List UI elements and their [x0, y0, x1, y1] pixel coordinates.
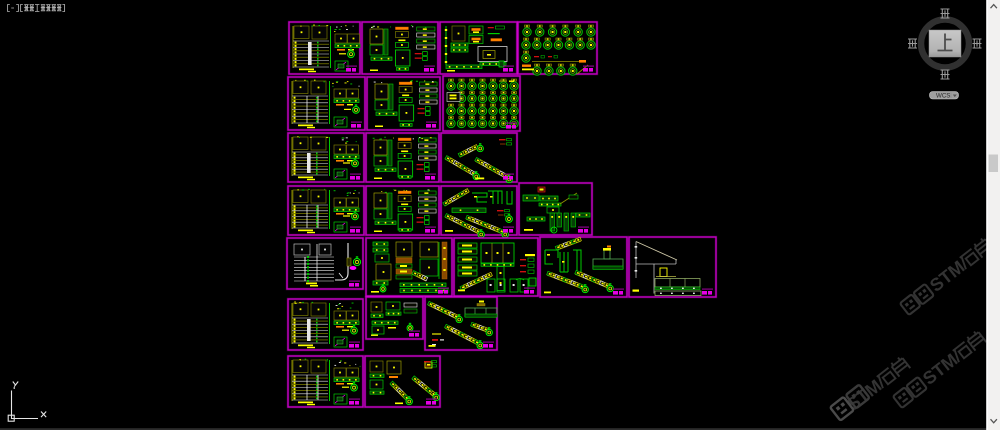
svg-text:WCS: WCS [936, 92, 950, 99]
